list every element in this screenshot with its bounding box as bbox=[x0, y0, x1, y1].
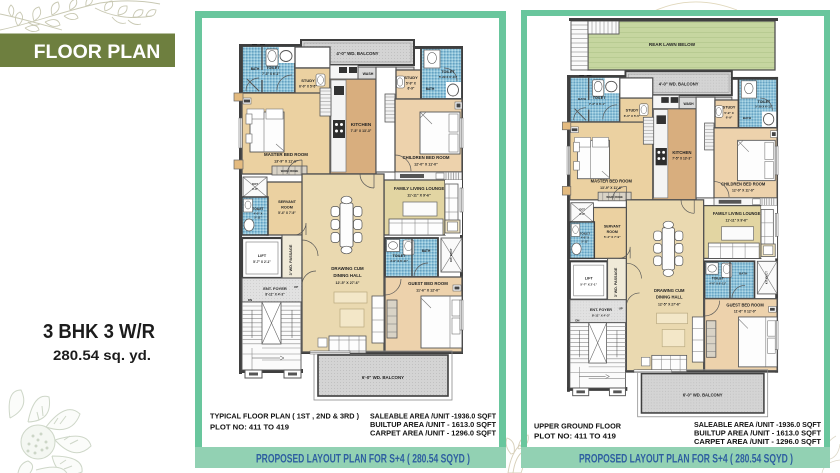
svg-text:WASH: WASH bbox=[683, 102, 694, 106]
svg-text:FAMILY LIVING LOUNGE: FAMILY LIVING LOUNGE bbox=[713, 211, 761, 216]
svg-text:WARD ROBE: WARD ROBE bbox=[606, 195, 623, 199]
svg-text:6'-0" X 5'-5": 6'-0" X 5'-5" bbox=[299, 85, 317, 89]
svg-text:GUEST BED ROOM: GUEST BED ROOM bbox=[726, 302, 764, 307]
svg-text:5'-7" X 2'-1": 5'-7" X 2'-1" bbox=[253, 260, 271, 264]
svg-text:12'-0" X 11'-0": 12'-0" X 11'-0" bbox=[414, 163, 438, 167]
svg-text:13'-9" X 11'-6": 13'-9" X 11'-6" bbox=[600, 186, 623, 190]
svg-text:12'-0" X 11'-0": 12'-0" X 11'-0" bbox=[732, 189, 755, 193]
svg-text:SERVANT: SERVANT bbox=[604, 225, 622, 229]
svg-text:ENT. FOYER: ENT. FOYER bbox=[263, 286, 287, 291]
svg-text:5'-9" X: 5'-9" X bbox=[724, 111, 733, 115]
svg-text:4'-0" X: 4'-0" X bbox=[581, 236, 589, 240]
svg-text:CHILDREN BED ROOM: CHILDREN BED ROOM bbox=[721, 181, 766, 186]
svg-text:LIFT: LIFT bbox=[258, 253, 267, 258]
svg-text:KITCHEN: KITCHEN bbox=[351, 122, 372, 127]
svg-text:11'-11" X 9'-6": 11'-11" X 9'-6" bbox=[407, 194, 431, 198]
svg-text:4'-0" WD. BALCONY: 4'-0" WD. BALCONY bbox=[659, 82, 699, 87]
svg-text:280.54 sq. yd.: 280.54 sq. yd. bbox=[53, 347, 151, 363]
svg-text:ROOM: ROOM bbox=[607, 230, 618, 234]
svg-text:8'-11" X 4'-3": 8'-11" X 4'-3" bbox=[592, 313, 611, 317]
svg-text:KIT. DUCT: KIT. DUCT bbox=[765, 271, 769, 284]
svg-text:8'-11" X 4'-3": 8'-11" X 4'-3" bbox=[265, 293, 285, 297]
svg-text:UP: UP bbox=[619, 306, 623, 310]
svg-text:BATH: BATH bbox=[426, 87, 435, 91]
svg-text:TOILET: TOILET bbox=[252, 207, 263, 211]
svg-text:CARPET AREA /UNIT - 1296.0: CARPET AREA /UNIT - 1296.0 SQFT bbox=[370, 429, 497, 438]
svg-text:ENT. FOYER: ENT. FOYER bbox=[590, 308, 612, 312]
svg-text:REAR LAWN BELOW: REAR LAWN BELOW bbox=[649, 42, 696, 47]
svg-text:DOT: DOT bbox=[579, 207, 585, 211]
svg-text:4'-0" WD. BALCONY: 4'-0" WD. BALCONY bbox=[336, 51, 378, 56]
svg-text:DRAWING CUM: DRAWING CUM bbox=[331, 266, 364, 271]
svg-text:7'-5" X 13'-3": 7'-5" X 13'-3" bbox=[672, 156, 692, 160]
svg-text:SERVANT: SERVANT bbox=[278, 200, 296, 204]
svg-text:DN: DN bbox=[248, 298, 252, 302]
svg-text:6'-9": 6'-9" bbox=[408, 87, 415, 91]
svg-text:3' WD. PASSAGE: 3' WD. PASSAGE bbox=[614, 267, 618, 297]
svg-text:CARPET AREA /UNIT - 1296.0: CARPET AREA /UNIT - 1296.0 SQFT bbox=[694, 437, 822, 446]
svg-text:TOILET: TOILET bbox=[393, 254, 407, 258]
svg-text:11'-11" X 9'-6": 11'-11" X 9'-6" bbox=[726, 218, 748, 222]
svg-text:WASH: WASH bbox=[363, 72, 374, 76]
svg-text:TOILET: TOILET bbox=[580, 231, 591, 235]
svg-text:3' WD. PASSAGE: 3' WD. PASSAGE bbox=[289, 244, 293, 275]
svg-text:TOILET: TOILET bbox=[593, 96, 606, 100]
svg-text:DOT: DOT bbox=[252, 182, 258, 186]
svg-text:3 BHK 3 W/R: 3 BHK 3 W/R bbox=[43, 321, 156, 343]
svg-text:BATH: BATH bbox=[739, 272, 747, 276]
svg-text:WARD ROBE: WARD ROBE bbox=[281, 169, 299, 173]
svg-text:12'-5" X 27'-6": 12'-5" X 27'-6" bbox=[336, 281, 360, 285]
svg-text:5'-7" X 2'-1": 5'-7" X 2'-1" bbox=[580, 282, 597, 286]
svg-text:STUDY: STUDY bbox=[723, 106, 736, 110]
svg-text:11'-6" X 12'-0": 11'-6" X 12'-0" bbox=[734, 310, 757, 314]
svg-text:5'-4" X 7'-9": 5'-4" X 7'-9" bbox=[604, 235, 621, 239]
svg-text:4'-0" X 6'-11": 4'-0" X 6'-11" bbox=[390, 259, 409, 263]
svg-text:5'-29 X 6'-11": 5'-29 X 6'-11" bbox=[439, 75, 458, 79]
svg-text:MASTER BED ROOM: MASTER BED ROOM bbox=[591, 179, 633, 184]
svg-text:STUDY: STUDY bbox=[301, 78, 315, 83]
svg-text:LIFT: LIFT bbox=[585, 276, 594, 280]
svg-text:STUDY: STUDY bbox=[404, 75, 418, 80]
svg-text:BATH: BATH bbox=[422, 249, 431, 253]
svg-text:PLOT NO: 411 TO 419: PLOT NO: 411 TO 419 bbox=[534, 432, 616, 441]
svg-text:PLOT NO: 411 TO 419: PLOT NO: 411 TO 419 bbox=[210, 423, 289, 432]
svg-text:BATH: BATH bbox=[251, 67, 260, 71]
svg-text:12'-5" X 27'-6": 12'-5" X 27'-6" bbox=[658, 302, 681, 306]
svg-text:KITCHEN: KITCHEN bbox=[672, 150, 691, 155]
svg-text:KIT. DUCT: KIT. DUCT bbox=[449, 248, 453, 262]
svg-text:5'-11": 5'-11" bbox=[581, 240, 589, 244]
svg-text:PROPOSED LAYOUT PLAN FOR S+4 (: PROPOSED LAYOUT PLAN FOR S+4 ( 280.54 SQ… bbox=[579, 454, 793, 466]
svg-text:DRAWING CUM: DRAWING CUM bbox=[654, 288, 685, 293]
svg-text:3'-9": 3'-9" bbox=[579, 212, 585, 216]
svg-text:DINING HALL: DINING HALL bbox=[656, 295, 683, 300]
svg-text:MASTER BED ROOM: MASTER BED ROOM bbox=[264, 152, 308, 157]
svg-text:6'-9": 6'-9" bbox=[726, 116, 733, 120]
svg-text:TOILET: TOILET bbox=[441, 70, 455, 74]
svg-text:BATH: BATH bbox=[743, 116, 751, 120]
svg-text:5'-9" X: 5'-9" X bbox=[406, 82, 417, 86]
svg-text:FAMILY LIVING LOUNGE: FAMILY LIVING LOUNGE bbox=[394, 186, 445, 191]
svg-text:BATH: BATH bbox=[578, 97, 586, 101]
svg-text:7'-5" X 13'-3": 7'-5" X 13'-3" bbox=[351, 129, 372, 133]
svg-text:TOILET: TOILET bbox=[758, 100, 771, 104]
svg-text:6'-0" WD. BALCONY: 6'-0" WD. BALCONY bbox=[362, 375, 404, 380]
svg-text:FLOOR PLAN: FLOOR PLAN bbox=[34, 41, 161, 63]
svg-text:GUEST BED ROOM: GUEST BED ROOM bbox=[408, 281, 448, 286]
svg-text:UP: UP bbox=[294, 285, 298, 289]
svg-text:ROOM: ROOM bbox=[281, 206, 293, 210]
svg-text:11'-6" X 12'-0": 11'-6" X 12'-0" bbox=[416, 289, 440, 293]
svg-text:DINING HALL: DINING HALL bbox=[333, 273, 362, 278]
svg-text:5'-4" X 7'-9": 5'-4" X 7'-9" bbox=[278, 211, 296, 215]
svg-text:7'-3" X 6'-1": 7'-3" X 6'-1" bbox=[262, 72, 280, 76]
svg-text:PROPOSED LAYOUT PLAN FOR S+4 (: PROPOSED LAYOUT PLAN FOR S+4 ( 280.54 SQ… bbox=[256, 454, 470, 466]
svg-text:7'-3" X 6'-1": 7'-3" X 6'-1" bbox=[589, 102, 606, 106]
svg-text:3'-9": 3'-9" bbox=[252, 187, 259, 191]
svg-text:TOILET: TOILET bbox=[266, 66, 280, 70]
svg-text:CHILDREN BED ROOM: CHILDREN BED ROOM bbox=[402, 155, 449, 160]
svg-text:13'-9" X 11'-6": 13'-9" X 11'-6" bbox=[274, 160, 298, 164]
svg-text:5'-29 X 6'-11": 5'-29 X 6'-11" bbox=[755, 105, 773, 109]
svg-text:5'-11": 5'-11" bbox=[254, 216, 262, 220]
svg-text:4'-0" X 6'-11": 4'-0" X 6'-11" bbox=[709, 281, 727, 285]
svg-text:DN: DN bbox=[575, 319, 579, 323]
svg-text:STUDY: STUDY bbox=[626, 108, 639, 112]
svg-text:UPPER GROUND FLOOR: UPPER GROUND FLOOR bbox=[534, 422, 621, 431]
svg-text:6'-0" X 5'-5": 6'-0" X 5'-5" bbox=[624, 114, 641, 118]
svg-text:TYPICAL FLOOR PLAN ( 1ST , 2ND: TYPICAL FLOOR PLAN ( 1ST , 2ND & 3RD ) bbox=[210, 412, 359, 421]
svg-text:6'-0" WD. BALCONY: 6'-0" WD. BALCONY bbox=[683, 393, 723, 398]
svg-text:TOILET: TOILET bbox=[712, 276, 725, 280]
